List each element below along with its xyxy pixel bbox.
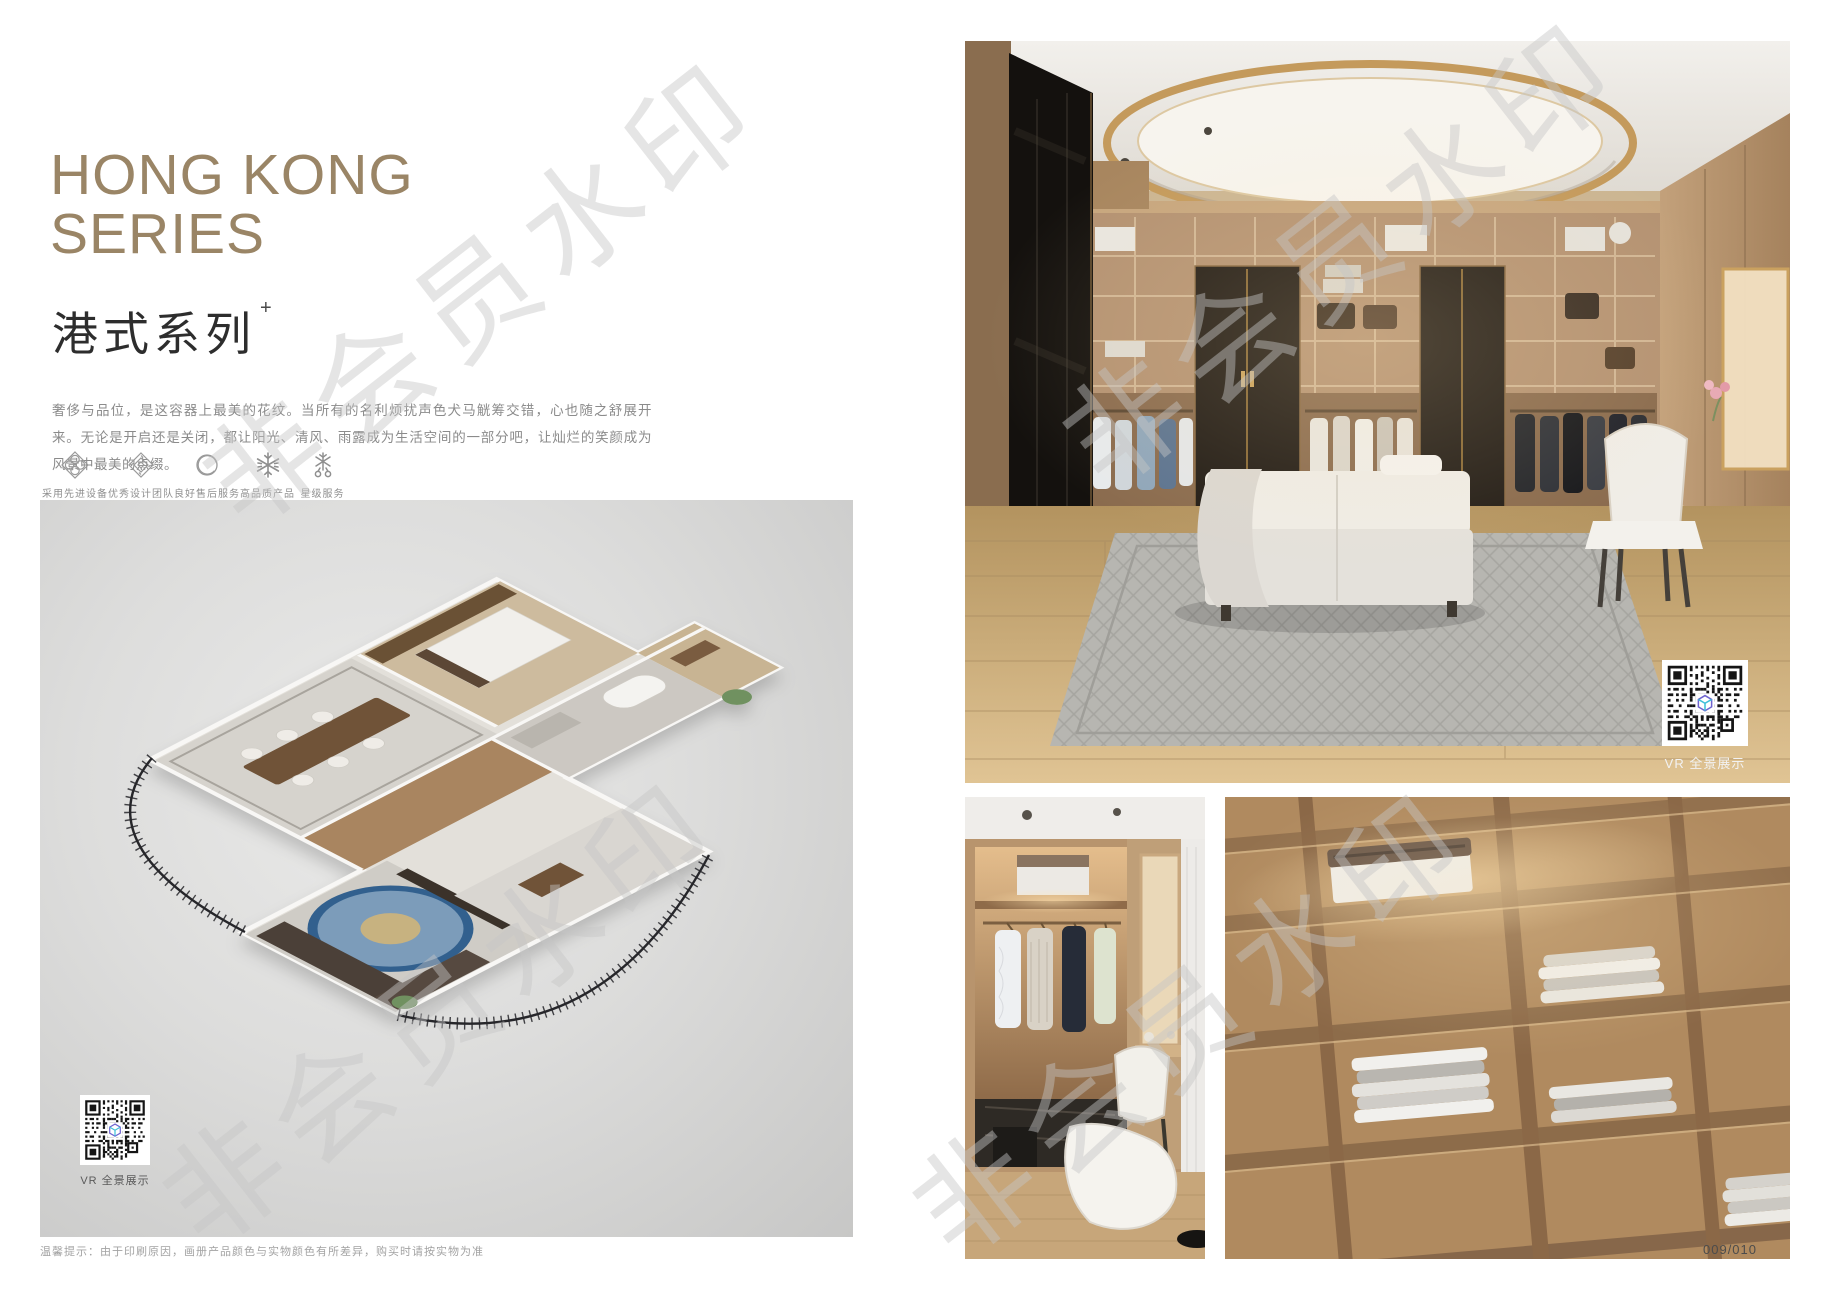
feature-advanced-equipment: 采用先进设备 [42,450,108,500]
series-subtitle-text: 港式系列 [52,308,256,360]
series-subtitle: 港式系列+ [52,298,268,364]
isometric-floorplan [40,500,853,1237]
snowflake-icon [253,450,283,480]
walkin-closet-photo: VR 全景展示 [965,41,1790,783]
catalog-spread: HONG KONG SERIES 港式系列+ 奢侈与品位，是这容器上最美的花纹。… [0,0,1836,1307]
feature-label: 高品质产品 [240,485,295,500]
print-disclaimer: 温馨提示：由于印刷原因，画册产品颜色与实物颜色有所差异，购买时请按实物为准 [40,1243,484,1259]
qr-code-floorplan [80,1095,150,1165]
feature-label: 采用先进设备 [42,485,108,500]
series-title-line2: SERIES [50,205,414,264]
feature-star-service: 星级服务 [295,450,350,500]
feature-label: 良好售后服务 [174,485,240,500]
page-number: 009/010 [1680,1242,1780,1257]
ring-icon [192,450,222,480]
feature-label: 优秀设计团队 [108,485,174,500]
star-service-icon [308,450,338,480]
shelf-closeup-photo [1225,797,1790,1259]
feature-quality-product: 高品质产品 [240,450,295,500]
series-title: HONG KONG SERIES [50,146,414,264]
feature-label: 星级服务 [295,485,350,500]
feature-design-team: 优秀设计团队 [108,450,174,500]
feature-after-sales: 良好售后服务 [174,450,240,500]
dressing-area-photo [965,797,1205,1259]
series-title-line1: HONG KONG [50,146,414,205]
feature-icon-row: 采用先进设备 优秀设计团队 良好售后服务 高品质产品 [42,450,350,500]
ornate-diamond-icon [126,450,156,480]
vr-panorama-label: VR 全景展示 [70,1172,160,1188]
floorplan-rooms [40,550,853,1014]
floorplan-panel: VR 全景展示 [40,500,853,1237]
ceiling [965,797,1205,839]
ornate-flower-icon [60,450,90,480]
vr-panorama-label: VR 全景展示 [1653,753,1757,772]
qr-code-panorama [1662,660,1748,746]
subtitle-plus-mark: + [260,297,272,319]
open-wardrobe [975,847,1127,1167]
